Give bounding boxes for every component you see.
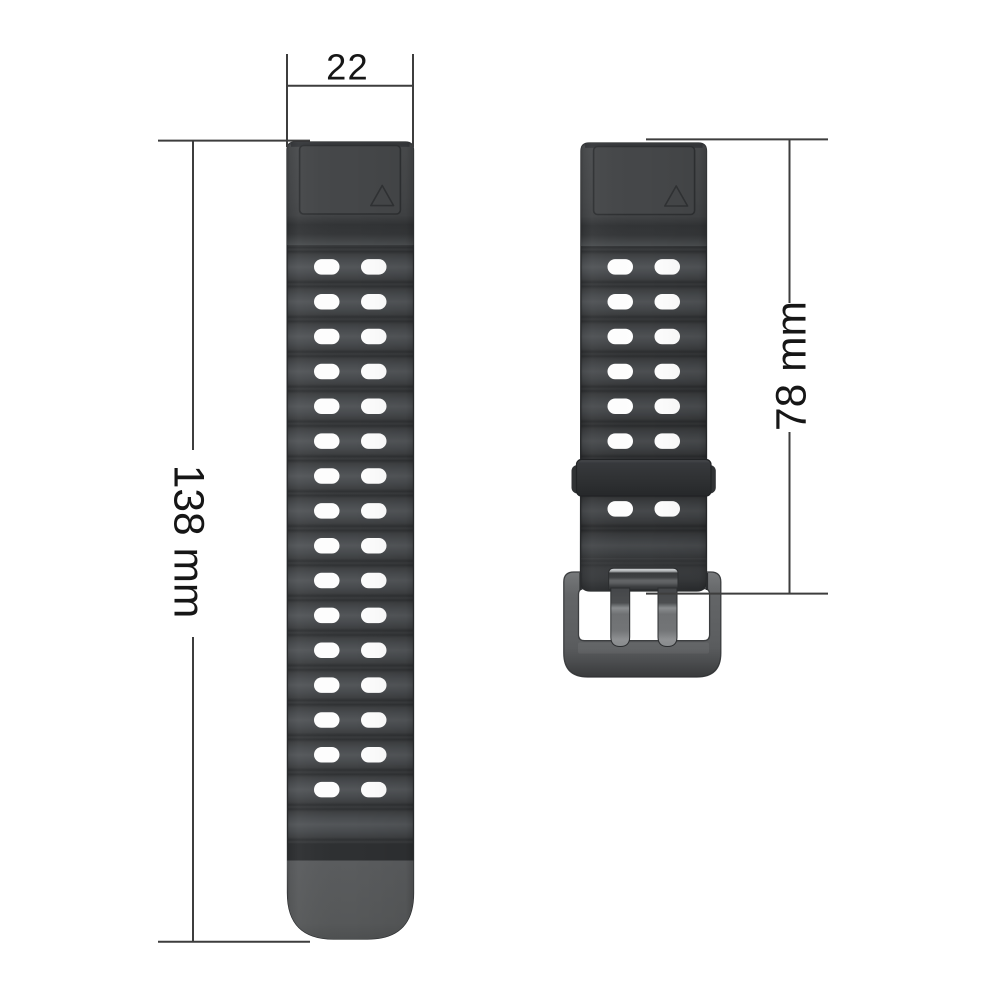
- svg-text:22: 22: [326, 47, 369, 88]
- svg-text:138 mm: 138 mm: [165, 465, 212, 619]
- svg-text:78 mm: 78 mm: [769, 301, 816, 431]
